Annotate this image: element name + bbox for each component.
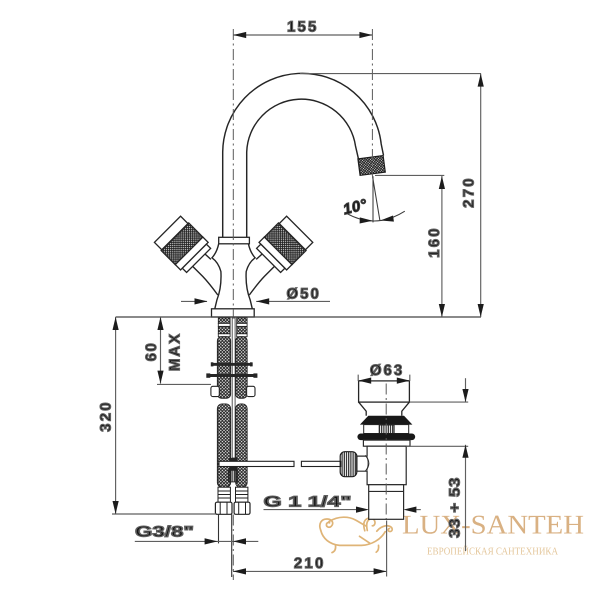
svg-text:320: 320 xyxy=(98,400,115,432)
svg-text:10°: 10° xyxy=(341,196,369,218)
svg-text:G3/8": G3/8" xyxy=(135,523,194,540)
svg-text:MAX: MAX xyxy=(167,332,184,371)
svg-text:160: 160 xyxy=(426,226,443,258)
svg-text:G 1 1/4": G 1 1/4" xyxy=(264,493,352,510)
svg-text:Ø50: Ø50 xyxy=(287,286,321,303)
svg-text:60: 60 xyxy=(143,342,160,362)
svg-text:270: 270 xyxy=(461,176,478,208)
svg-text:Ø63: Ø63 xyxy=(370,362,404,379)
svg-text:LUX-SANTEH: LUX-SANTEH xyxy=(402,510,584,540)
svg-text:155: 155 xyxy=(287,18,319,35)
svg-text:33 + 53: 33 + 53 xyxy=(446,477,463,538)
svg-text:ЕВРОПЕЙСКАЯ САНТЕХНИКА: ЕВРОПЕЙСКАЯ САНТЕХНИКА xyxy=(427,546,558,558)
svg-text:210: 210 xyxy=(294,555,326,572)
